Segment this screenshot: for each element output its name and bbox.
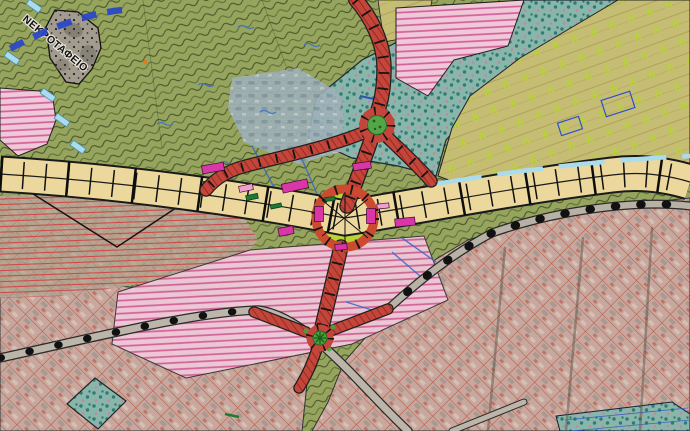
tree-dot: [373, 120, 376, 123]
roundabout-crossing-east: [367, 209, 376, 224]
magenta-structure: [335, 244, 347, 251]
green-patch: [331, 325, 336, 330]
green-verge: [325, 197, 335, 202]
north-roundabout-island: [368, 116, 387, 135]
orange-dot-marker: [143, 60, 147, 64]
pink-structure: [377, 203, 389, 209]
roundabout-crossing-west: [315, 207, 324, 222]
tree-dot: [374, 128, 376, 130]
planning-map-viewport[interactable]: ΝΕΚΡΟΤΑΦΕΙΟ: [0, 0, 690, 431]
magenta-structure: [395, 217, 416, 227]
tree-dot: [379, 126, 382, 129]
planning-map-canvas[interactable]: ΝΕΚΡΟΤΑΦΕΙΟ: [0, 0, 690, 431]
north-roundabout: [363, 111, 391, 139]
